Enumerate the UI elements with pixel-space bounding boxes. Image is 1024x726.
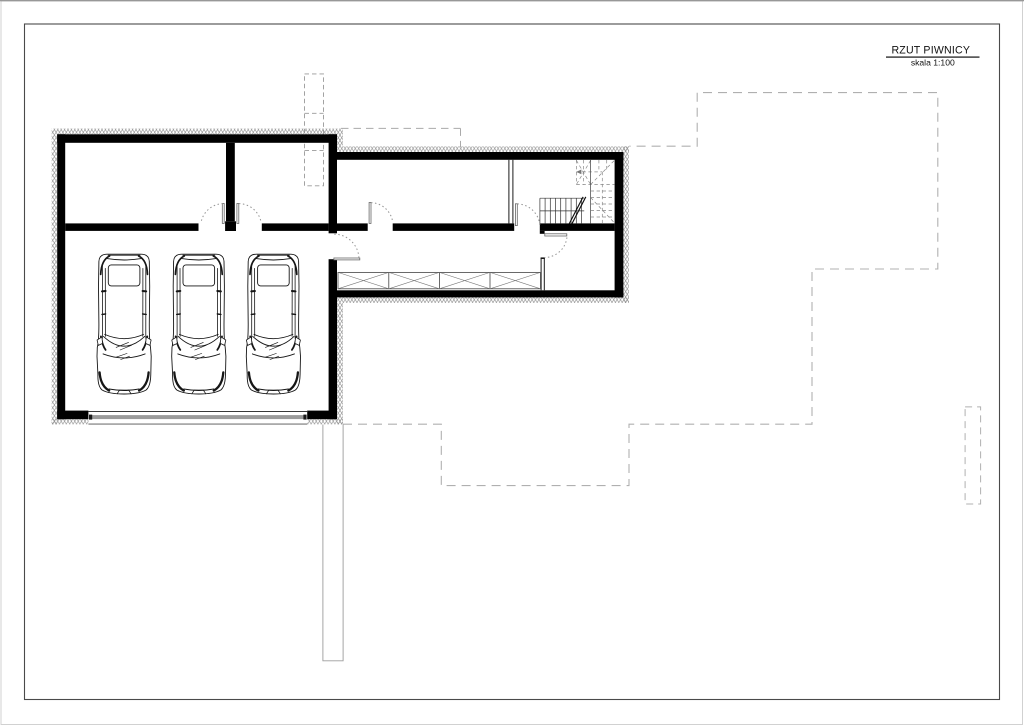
- svg-text:RZUT PIWNICY: RZUT PIWNICY: [891, 45, 970, 57]
- svg-text:skala 1:100: skala 1:100: [911, 58, 955, 68]
